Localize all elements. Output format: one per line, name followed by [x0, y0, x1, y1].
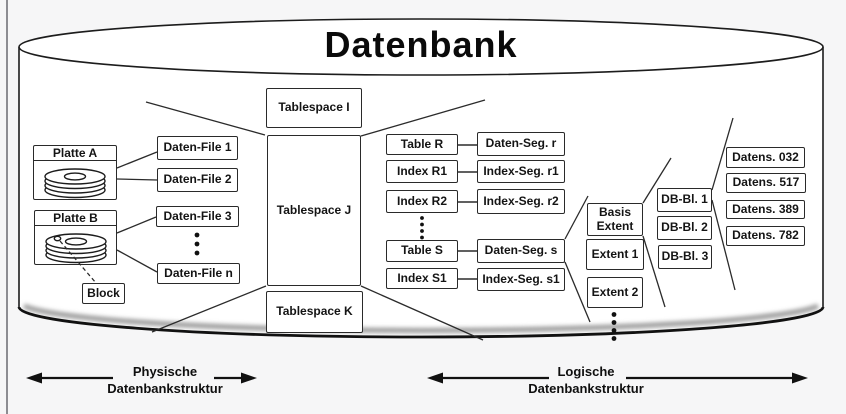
index-r2-box: Index R2	[386, 190, 458, 213]
record-032-box: Datens. 032	[726, 147, 805, 168]
index-seg-s1-box: Index-Seg. s1	[477, 268, 565, 291]
db-block-2-box: DB-Bl. 2	[657, 216, 712, 240]
page-left-border	[6, 0, 8, 414]
database-structure-diagram: Datenbank Platte A Platte B	[0, 0, 846, 414]
record-782-box: Datens. 782	[726, 226, 805, 246]
disk-icon	[35, 160, 115, 200]
block-box: Block	[82, 283, 125, 304]
disk-a-box: Platte A	[33, 145, 117, 200]
block-marker	[54, 236, 60, 240]
db-block-1-box: DB-Bl. 1	[657, 188, 712, 212]
daten-file-3-box: Daten-File 3	[156, 206, 239, 227]
extent-2-box: Extent 2	[587, 277, 643, 308]
daten-file-2-box: Daten-File 2	[157, 168, 238, 192]
index-s1-box: Index S1	[386, 268, 458, 289]
cylinder-bottom-shadow	[24, 306, 818, 330]
disk-file-connectors	[117, 152, 157, 272]
daten-file-1-box: Daten-File 1	[157, 136, 238, 160]
legend-physical-line1: Physische	[90, 364, 240, 381]
record-389-box: Datens. 389	[726, 200, 805, 219]
db-block-3-box: DB-Bl. 3	[658, 245, 712, 269]
legend-physical: Physische Datenbankstruktur	[90, 364, 240, 398]
diagram-title: Datenbank	[246, 24, 596, 66]
legend-physical-line2: Datenbankstruktur	[90, 381, 240, 398]
index-seg-r2-box: Index-Seg. r2	[477, 189, 565, 214]
table-s-box: Table S	[386, 240, 458, 262]
legend-logical-line2: Datenbankstruktur	[496, 381, 676, 398]
ellipsis-dots-extents	[612, 312, 617, 341]
ellipsis-dots-files	[195, 233, 200, 256]
daten-file-n-box: Daten-File n	[157, 263, 240, 284]
index-r1-box: Index R1	[386, 160, 458, 183]
tablespace-j-box: Tablespace J	[267, 135, 361, 286]
disk-b-label: Platte B	[35, 211, 116, 226]
table-r-box: Table R	[386, 134, 458, 155]
disk-icon	[36, 225, 116, 265]
daten-seg-r-box: Daten-Seg. r	[477, 132, 565, 156]
legend-logical: Logische Datenbankstruktur	[496, 364, 676, 398]
tablespace-i-box: Tablespace I	[266, 88, 362, 128]
disk-b-box: Platte B	[34, 210, 117, 265]
index-seg-r1-box: Index-Seg. r1	[477, 160, 565, 183]
cylinder-bottom-arc	[19, 307, 823, 337]
tablespace-k-box: Tablespace K	[266, 291, 363, 333]
daten-seg-s-box: Daten-Seg. s	[477, 239, 565, 263]
extent-1-box: Extent 1	[586, 239, 644, 270]
legend-logical-line1: Logische	[496, 364, 676, 381]
basis-extent-box: Basis Extent	[587, 203, 643, 236]
record-517-box: Datens. 517	[726, 173, 806, 193]
disk-a-label: Platte A	[34, 146, 116, 161]
table-segment-connectors	[458, 145, 477, 279]
ellipsis-dots-tables	[420, 216, 424, 239]
